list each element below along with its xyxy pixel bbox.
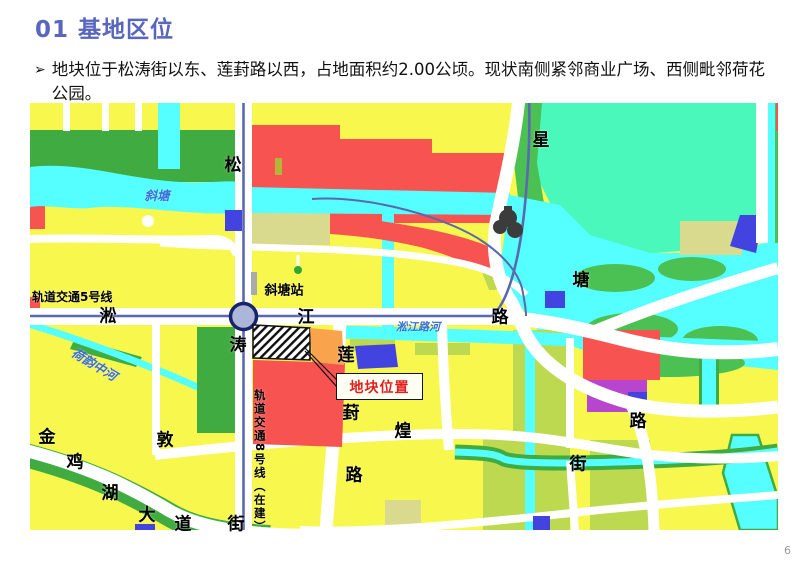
river-label-songjiang: 淞江路河 — [396, 322, 440, 333]
zoning-map-graphic — [30, 103, 778, 530]
station-label: 斜塘站 — [264, 285, 303, 298]
page-title: 01 基地区位 — [35, 10, 174, 44]
road-label-dunhuang-2: 煌 — [395, 424, 412, 441]
bullet-marker-icon: ➢ — [34, 58, 46, 106]
road-label-dunhuang-1: 敦 — [157, 433, 174, 450]
road-label-lianfeng-3: 路 — [346, 468, 363, 485]
road-label-songjiang-2: 江 — [298, 310, 315, 327]
road-label-jinjihu-5: 道 — [175, 517, 192, 534]
metro-line8-label: 轨道交通8号线（在建） — [253, 389, 265, 534]
road-label-jinjihu-2: 鸡 — [67, 455, 84, 472]
location-map: 轨道交通5号线 轨道交通8号线（在建） 斜塘站 斜塘 淞江路河 荷韵中河 松 涛… — [30, 103, 778, 530]
bullet-paragraph: ➢ 地块位于松涛街以东、莲葑路以西，占地面积约2.00公顷。现状南侧紧邻商业广场… — [34, 58, 776, 106]
river-label-xietang: 斜塘 — [144, 190, 169, 203]
road-label-lianfeng-1: 莲 — [338, 348, 355, 365]
site-parcel-hatched — [253, 325, 310, 360]
road-label-xingtang-3: 路 — [630, 414, 647, 431]
page-number: 6 — [784, 544, 791, 557]
road-label-jinjihu-1: 金 — [39, 430, 56, 447]
road-label-jinjihu-4: 大 — [139, 508, 156, 525]
road-label-songtao-2: 涛 — [230, 338, 247, 355]
road-label-dunhuang-3: 街 — [570, 457, 587, 474]
site-location-callout: 地块位置 — [336, 373, 423, 400]
building-icon — [251, 272, 257, 295]
road-label-songtao-3: 街 — [228, 517, 245, 534]
road-label-xingtang-2: 塘 — [573, 273, 590, 290]
road-label-songtao-1: 松 — [225, 158, 242, 175]
metro-line5-label: 轨道交通5号线 — [32, 291, 112, 303]
road-label-lianfeng-2: 葑 — [343, 406, 360, 423]
road-label-jinjihu-3: 湖 — [102, 486, 119, 503]
site-location-callout-text: 地块位置 — [350, 377, 410, 397]
bullet-text: 地块位于松涛街以东、莲葑路以西，占地面积约2.00公顷。现状南侧紧邻商业广场、西… — [52, 58, 776, 106]
road-label-xingtang-1: 星 — [533, 133, 550, 150]
slide: 01 基地区位 ➢ 地块位于松涛街以东、莲葑路以西，占地面积约2.00公顷。现状… — [0, 0, 800, 566]
road-label-songjiang-1: 淞 — [100, 309, 117, 326]
road-label-songjiang-3: 路 — [492, 310, 509, 327]
